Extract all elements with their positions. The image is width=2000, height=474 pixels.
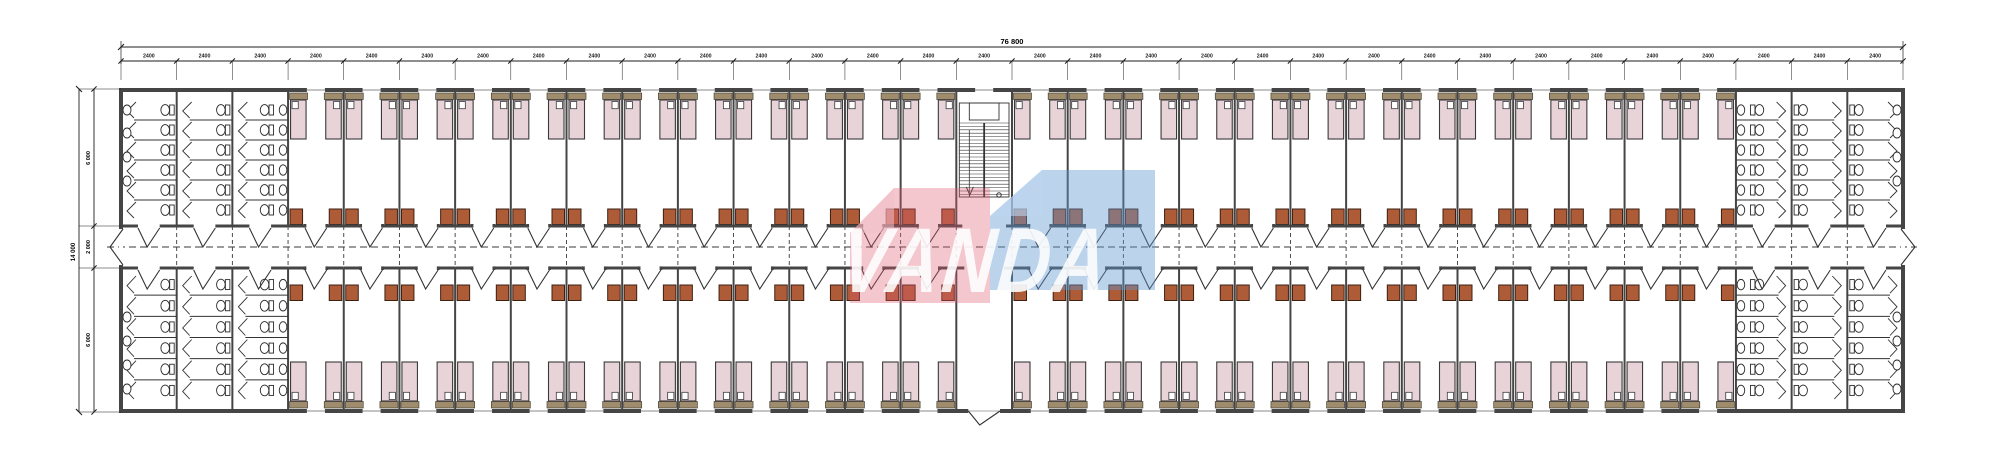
door-jamb	[1306, 266, 1309, 270]
pillow	[445, 392, 451, 399]
toilet-tank	[1850, 280, 1855, 290]
desk	[496, 285, 509, 301]
bed-headboard	[491, 402, 509, 409]
bed-headboard	[1716, 402, 1734, 409]
toilet-tank	[269, 205, 274, 215]
pillow	[1057, 392, 1063, 399]
door-swing	[751, 270, 773, 289]
toilet-tank	[1850, 385, 1855, 395]
bed-headboard	[1048, 93, 1066, 100]
bed-headboard	[735, 93, 753, 100]
desk	[1682, 209, 1695, 225]
door-jamb	[604, 224, 607, 228]
bay-dimension-label: 2400	[421, 54, 433, 60]
pillow	[1072, 392, 1078, 399]
bed-headboard	[436, 402, 454, 409]
desk	[1387, 285, 1400, 301]
toilet-bowl	[260, 385, 269, 396]
door-jamb	[359, 224, 362, 228]
door-jamb	[548, 224, 551, 228]
bay-dimension-label: 2400	[1368, 54, 1380, 60]
bay-dimension-label: 2400	[1814, 54, 1826, 60]
door-jamb	[526, 224, 529, 228]
toilet-bowl	[1799, 205, 1808, 216]
bed-headboard	[1494, 402, 1512, 409]
sink-icon	[1893, 360, 1901, 370]
stair-landing	[969, 103, 999, 120]
desk	[1666, 285, 1679, 301]
bay-dimension-label: 2400	[644, 54, 656, 60]
bed-headboard	[1160, 93, 1178, 100]
pillow	[1113, 392, 1119, 399]
sink-icon	[1737, 105, 1745, 115]
stall-door-swing	[1777, 162, 1786, 178]
pillow	[793, 102, 799, 109]
bay-dimension-label: 2400	[923, 54, 935, 60]
pillow	[723, 102, 729, 109]
bed-headboard	[436, 93, 454, 100]
pillow	[738, 102, 744, 109]
sink-icon	[123, 360, 131, 370]
door-swing	[416, 228, 438, 247]
desk	[719, 285, 732, 301]
stall-door-swing	[183, 142, 192, 158]
pillow	[1670, 392, 1676, 399]
stall-door-swing	[1777, 340, 1786, 357]
sink-icon	[1737, 385, 1745, 395]
toilet-tank	[225, 185, 230, 195]
door-jamb	[493, 224, 496, 228]
door-jamb	[638, 266, 641, 270]
pillow	[1057, 102, 1063, 109]
toilet-tank	[1794, 125, 1799, 135]
desk	[552, 209, 565, 225]
bed-headboard	[324, 93, 342, 100]
bed-headboard	[1549, 402, 1567, 409]
door-jamb	[1439, 224, 1442, 228]
bed-headboard	[937, 93, 955, 100]
toilet-tank	[1750, 364, 1755, 374]
desk	[1682, 285, 1695, 301]
bed-headboard	[1515, 93, 1533, 100]
bed-headboard	[568, 93, 586, 100]
pillow	[1503, 392, 1509, 399]
toilet-tank	[1850, 343, 1855, 353]
stall-door-swing	[1832, 361, 1841, 378]
toilet-bowl	[1799, 364, 1808, 375]
desk	[1610, 285, 1623, 301]
toilet-bowl	[1855, 105, 1864, 116]
bed-headboard	[1716, 93, 1734, 100]
toilet-tank	[1794, 165, 1799, 175]
sink-icon	[1737, 364, 1745, 374]
toilet-tank	[1850, 364, 1855, 374]
toilet-bowl	[260, 205, 269, 216]
door-jamb	[693, 224, 696, 228]
door-jamb	[749, 224, 752, 228]
door-jamb	[471, 224, 474, 228]
toilet-tank	[170, 165, 175, 175]
door-jamb	[437, 266, 440, 270]
toilet-bowl	[161, 343, 170, 354]
toilet-bowl	[217, 385, 226, 396]
door-swing	[305, 228, 327, 247]
stall-door-swing	[238, 382, 247, 399]
pillow	[905, 392, 911, 399]
bed-headboard	[1661, 402, 1679, 409]
toilet-bowl	[260, 343, 269, 354]
door-jamb	[771, 224, 774, 228]
stall-door-swing	[1832, 162, 1841, 178]
door-jamb	[693, 266, 696, 270]
door-jamb	[359, 266, 362, 270]
toilet-bowl	[161, 145, 170, 156]
toilet-tank	[1750, 322, 1755, 332]
door-swing	[361, 228, 383, 247]
bed-headboard	[1215, 402, 1233, 409]
door-jamb	[1495, 224, 1498, 228]
bed-headboard	[345, 93, 363, 100]
door-jamb	[827, 224, 830, 228]
pillow	[1447, 392, 1453, 399]
toilet-tank	[1794, 343, 1799, 353]
door-jamb	[1473, 224, 1476, 228]
sink-icon	[1893, 128, 1901, 138]
desk	[513, 209, 526, 225]
stall-door-swing	[183, 122, 192, 138]
toilet-bowl	[1799, 105, 1808, 116]
bed-headboard	[714, 93, 732, 100]
door-jamb	[1584, 224, 1587, 228]
door-jamb	[660, 224, 663, 228]
door-swing	[1753, 228, 1775, 247]
desk	[1332, 285, 1345, 301]
pillow	[1573, 392, 1579, 399]
stall-door-swing	[1888, 202, 1897, 218]
bay-dimension-label: 2400	[1479, 54, 1491, 60]
pillow	[849, 392, 855, 399]
stall-door-swing	[1777, 142, 1786, 158]
bed-headboard	[1069, 93, 1087, 100]
sink-icon	[279, 279, 287, 289]
toilet-bowl	[1855, 322, 1864, 333]
door-swing	[584, 228, 606, 247]
bed-headboard	[1661, 93, 1679, 100]
toilet-tank	[1794, 280, 1799, 290]
door-jamb	[1306, 224, 1309, 228]
door-swing	[1363, 270, 1385, 289]
pillow	[1684, 392, 1690, 399]
bed-headboard	[1104, 402, 1122, 409]
stall-door-swing	[238, 361, 247, 378]
pillow	[1462, 392, 1468, 399]
toilet-tank	[225, 165, 230, 175]
toilet-tank	[170, 364, 175, 374]
pillow	[1573, 102, 1579, 109]
toilet-bowl	[1855, 205, 1864, 216]
pillow	[515, 392, 521, 399]
door-jamb	[1161, 224, 1164, 228]
door-swing	[1196, 270, 1218, 289]
stall-door-swing	[183, 361, 192, 378]
pillow	[556, 392, 562, 399]
toilet-tank	[1794, 322, 1799, 332]
toilet-bowl	[260, 185, 269, 196]
toilet-bowl	[1755, 364, 1764, 375]
door-jamb	[715, 224, 718, 228]
toilet-tank	[1750, 125, 1755, 135]
floor-plan-page: 2400240024002400240024002400240024002400…	[0, 0, 2000, 474]
toilet-bowl	[260, 322, 269, 333]
bed-headboard	[547, 402, 565, 409]
toilet-tank	[225, 280, 230, 290]
sink-icon	[1737, 165, 1745, 175]
bay-dimension-label: 2400	[1869, 54, 1881, 60]
pillow	[445, 102, 451, 109]
pillow	[1127, 392, 1133, 399]
bay-dimension-label: 2400	[1090, 54, 1102, 60]
toilet-tank	[1850, 205, 1855, 215]
toilet-tank	[170, 322, 175, 332]
door-swing	[695, 228, 717, 247]
toilet-tank	[1850, 125, 1855, 135]
stall-door-swing	[127, 202, 136, 218]
desk	[1165, 209, 1178, 225]
toilet-bowl	[161, 185, 170, 196]
toilet-tank	[225, 322, 230, 332]
desk	[552, 285, 565, 301]
bed-headboard	[881, 93, 899, 100]
door-jamb	[415, 224, 418, 228]
door-swing	[1307, 270, 1329, 289]
pillow	[1072, 102, 1078, 109]
bed-headboard	[1515, 402, 1533, 409]
desk	[329, 285, 342, 301]
pillow	[501, 392, 507, 399]
door-swing	[305, 270, 327, 289]
stall-door-swing	[183, 162, 192, 178]
pillow	[348, 392, 354, 399]
desk	[775, 209, 788, 225]
pillow	[668, 102, 674, 109]
pillow	[1726, 392, 1732, 399]
toilet-bowl	[260, 105, 269, 116]
stall-door-swing	[1777, 102, 1786, 118]
desk	[1220, 209, 1233, 225]
pillow	[682, 102, 688, 109]
bed-headboard	[1292, 93, 1310, 100]
desk	[1721, 209, 1734, 225]
bed-headboard	[825, 402, 843, 409]
toilet-tank	[269, 185, 274, 195]
pillow	[946, 102, 952, 109]
toilet-tank	[1794, 385, 1799, 395]
bed-headboard	[1570, 402, 1588, 409]
pillow	[1183, 102, 1189, 109]
door-swing	[806, 270, 828, 289]
desk	[680, 285, 693, 301]
left-segment-label-upper: 6 000	[86, 151, 92, 165]
door-swing	[1642, 228, 1664, 247]
door-swing	[1697, 228, 1719, 247]
toilet-tank	[170, 145, 175, 155]
bed-headboard	[547, 93, 565, 100]
left-total-dimension-label: 14 000	[71, 242, 77, 261]
desk	[441, 285, 454, 301]
toilet-bowl	[161, 205, 170, 216]
door-jamb	[1250, 224, 1253, 228]
door-swing	[1642, 270, 1664, 289]
desk	[457, 285, 470, 301]
door-jamb	[1662, 224, 1665, 228]
desk	[1181, 285, 1194, 301]
door-swing	[1586, 270, 1608, 289]
door-swing	[1475, 228, 1497, 247]
desk	[1292, 285, 1305, 301]
toilet-tank	[1750, 280, 1755, 290]
toilet-tank	[170, 385, 175, 395]
stall-door-swing	[1832, 318, 1841, 335]
door-jamb	[638, 224, 641, 228]
desk	[457, 209, 470, 225]
door-swing	[639, 270, 661, 289]
toilet-tank	[1794, 364, 1799, 374]
bed-headboard	[1327, 93, 1345, 100]
door-jamb	[1551, 266, 1554, 270]
door-jamb	[1606, 224, 1609, 228]
door-jamb	[582, 224, 585, 228]
desk	[1292, 209, 1305, 225]
toilet-tank	[1850, 185, 1855, 195]
stall-door-swing	[1777, 297, 1786, 314]
desk	[1404, 209, 1417, 225]
pillow	[292, 102, 298, 109]
stall-door-swing	[127, 297, 136, 314]
bay-dimension-label: 2400	[1647, 54, 1659, 60]
sink-icon	[1893, 336, 1901, 346]
door-swing	[639, 228, 661, 247]
stall-door-swing	[1777, 122, 1786, 138]
desk	[830, 209, 843, 225]
door-swing	[1697, 270, 1719, 289]
toilet-tank	[269, 322, 274, 332]
pillow	[1503, 102, 1509, 109]
stall-door-swing	[1777, 182, 1786, 198]
stall-door-swing	[238, 297, 247, 314]
desk	[719, 209, 732, 225]
pillow	[292, 392, 298, 399]
pillow	[1183, 392, 1189, 399]
desk	[1571, 209, 1584, 225]
desk	[1276, 285, 1289, 301]
door-jamb	[304, 224, 307, 228]
door-jamb	[805, 266, 808, 270]
sink-icon	[279, 125, 287, 135]
bed-headboard	[714, 402, 732, 409]
pillow	[1225, 392, 1231, 399]
toilet-bowl	[1755, 300, 1764, 311]
desk	[1332, 209, 1345, 225]
pillow	[779, 392, 785, 399]
door-swing	[249, 228, 271, 247]
pillow	[1280, 392, 1286, 399]
sink-icon	[279, 105, 287, 115]
desk	[1237, 209, 1250, 225]
stall-door-swing	[1832, 102, 1841, 118]
door-jamb	[526, 266, 529, 270]
bed-headboard	[603, 93, 621, 100]
desk	[1721, 285, 1734, 301]
door-jamb	[493, 266, 496, 270]
desk	[1627, 285, 1640, 301]
stall-door-swing	[238, 202, 247, 218]
toilet-bowl	[1855, 125, 1864, 136]
bed-headboard	[902, 402, 920, 409]
door-jamb	[1696, 224, 1699, 228]
desk	[496, 209, 509, 225]
pillow	[1016, 392, 1022, 399]
door-jamb	[381, 266, 384, 270]
pillow	[571, 102, 577, 109]
toilet-bowl	[1855, 145, 1864, 156]
toilet-bowl	[1799, 385, 1808, 396]
bed-headboard	[1014, 93, 1032, 100]
toilet-tank	[225, 205, 230, 215]
bed-headboard	[345, 402, 363, 409]
bed-headboard	[290, 402, 308, 409]
bay-dimension-label: 2400	[1257, 54, 1269, 60]
pillow	[849, 102, 855, 109]
bed-headboard	[1014, 402, 1032, 409]
bed-headboard	[624, 93, 642, 100]
exterior-wall-bottom	[119, 409, 1905, 413]
sink-icon	[1737, 145, 1745, 155]
toilet-tank	[269, 343, 274, 353]
toilet-bowl	[217, 205, 226, 216]
door-swing	[138, 228, 160, 247]
door-jamb	[827, 266, 830, 270]
pillow	[946, 392, 952, 399]
desk	[1554, 209, 1567, 225]
pillow	[668, 392, 674, 399]
bed-headboard	[290, 93, 308, 100]
stall-door-swing	[1888, 162, 1897, 178]
bed-headboard	[1048, 402, 1066, 409]
bay-dimension-label: 2400	[978, 54, 990, 60]
door-jamb	[437, 224, 440, 228]
left-segment-label-lower: 6 000	[86, 333, 92, 347]
toilet-bowl	[260, 165, 269, 176]
toilet-tank	[1850, 145, 1855, 155]
pillow	[1350, 392, 1356, 399]
door-swing	[1419, 270, 1441, 289]
pillow	[389, 392, 395, 399]
stall-door-swing	[127, 276, 136, 293]
door-jamb	[1718, 224, 1721, 228]
door-jamb	[325, 266, 328, 270]
pillow	[1406, 392, 1412, 399]
bed-headboard	[1292, 402, 1310, 409]
toilet-tank	[170, 301, 175, 311]
bay-dimension-label: 2400	[1034, 54, 1046, 60]
toilet-bowl	[1799, 125, 1808, 136]
door-jamb	[1216, 224, 1219, 228]
left-segment-label-corridor: 2 000	[86, 240, 92, 254]
stall-door-swing	[1832, 297, 1841, 314]
toilet-tank	[170, 205, 175, 215]
bed-headboard	[1403, 402, 1421, 409]
bed-headboard	[1236, 93, 1254, 100]
